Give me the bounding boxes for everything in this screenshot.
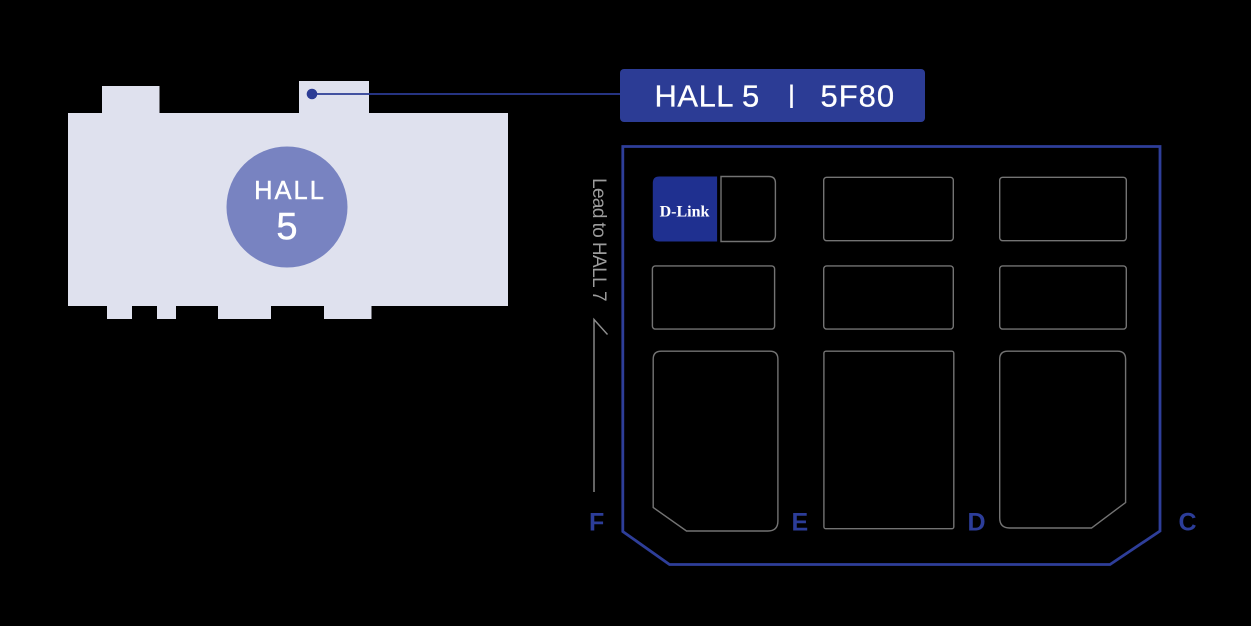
svg-text:E: E: [792, 509, 809, 537]
svg-text:HALL 5: HALL 5: [655, 79, 760, 114]
svg-text:C: C: [1179, 509, 1197, 537]
svg-text:Lead to HALL 7: Lead to HALL 7: [588, 178, 609, 301]
svg-text:HALL: HALL: [254, 177, 326, 205]
svg-text:F: F: [589, 509, 604, 537]
svg-text:D: D: [968, 509, 986, 537]
svg-text:D-Link: D-Link: [660, 204, 710, 221]
svg-text:5F80: 5F80: [821, 79, 896, 114]
svg-text:5: 5: [276, 206, 297, 248]
